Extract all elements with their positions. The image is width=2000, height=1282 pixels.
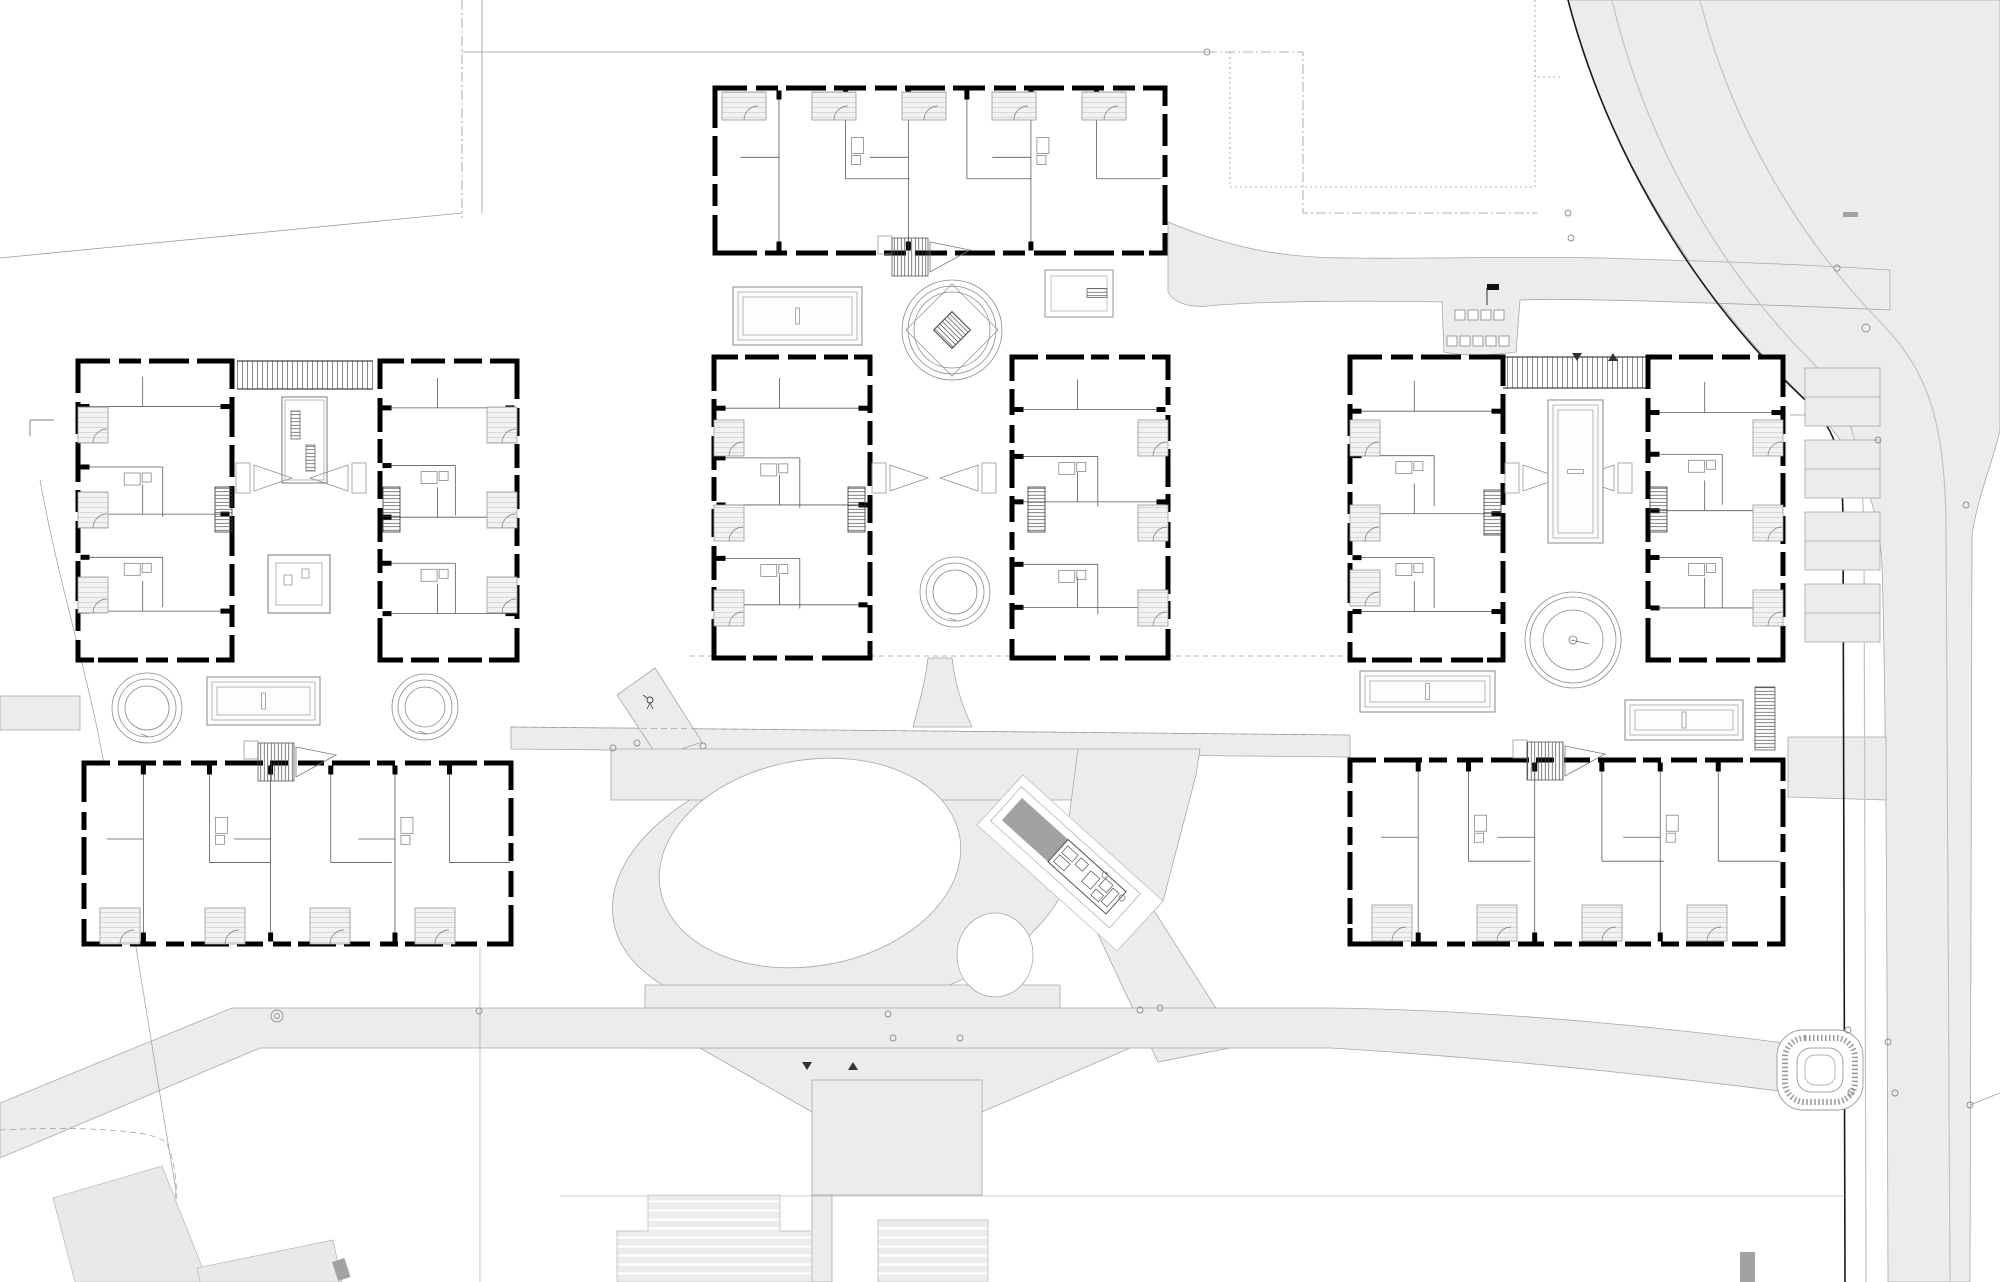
stairwell: [1650, 487, 1667, 532]
pool: [733, 287, 862, 345]
loggia: [1687, 905, 1727, 941]
stair-entry: [310, 463, 366, 493]
site-object-1: [1740, 1252, 1755, 1282]
loggia: [487, 407, 517, 443]
road-plaza: [812, 1080, 982, 1195]
table-planter: [282, 397, 327, 483]
small-green-island: [957, 913, 1033, 997]
loggia: [100, 908, 140, 944]
loggia: [1082, 92, 1126, 120]
loggia: [714, 590, 744, 626]
loggia: [1753, 505, 1783, 541]
existing-building-sw-2: [197, 1240, 342, 1282]
stairwell: [1028, 487, 1045, 532]
loggia: [1138, 590, 1168, 626]
loggia: [722, 92, 766, 120]
outdoor-table: [1481, 310, 1491, 320]
site-plan: [0, 0, 2000, 1282]
stairwell: [1484, 490, 1501, 535]
loggia: [992, 92, 1036, 120]
sign-board: [1487, 284, 1499, 290]
loggia: [1138, 420, 1168, 456]
existing-building-sw-1: [53, 1166, 208, 1282]
pool: [1360, 671, 1495, 712]
stair-entry: [872, 463, 928, 493]
loggia: [78, 407, 108, 443]
site-line-6: [1535, 0, 1563, 77]
plaza-planter: [268, 555, 330, 613]
pool: [1625, 700, 1743, 740]
stair-entry: [236, 463, 292, 493]
road-central-band-east: [1788, 737, 1886, 800]
outdoor-table: [1460, 336, 1470, 346]
site-line-0: [0, 213, 462, 258]
road-plaza-stem: [812, 1195, 832, 1282]
site-line-13: [1970, 1093, 2000, 1105]
pergola: [1503, 357, 1648, 388]
loggia: [78, 492, 108, 528]
pergola: [237, 361, 373, 389]
survey-marker-12: [1568, 235, 1574, 241]
loggia: [1582, 905, 1622, 941]
outdoor-table: [1473, 336, 1483, 346]
outdoor-table: [1499, 336, 1509, 346]
site-line-14: [30, 420, 54, 436]
outdoor-table: [1494, 310, 1504, 320]
loggia: [415, 908, 455, 944]
outdoor-table: [1447, 336, 1457, 346]
outdoor-table: [1468, 310, 1478, 320]
road-central-band-west: [0, 696, 80, 730]
loggia: [78, 577, 108, 613]
stairwell: [848, 487, 865, 532]
loggia: [714, 505, 744, 541]
mound-feature: [1777, 1030, 1863, 1110]
existing-building-s-1: [617, 1195, 812, 1282]
site-object-2: [1843, 212, 1858, 217]
loggia: [487, 577, 517, 613]
cluster-center: [714, 88, 1168, 658]
stairwell: [215, 487, 232, 532]
stairwell: [383, 487, 400, 532]
cluster-west: [78, 361, 517, 944]
site-line-5: [1230, 52, 1535, 187]
circular-planter: [920, 557, 990, 627]
loggia: [487, 492, 517, 528]
outdoor-table: [1455, 310, 1465, 320]
outdoor-table: [1486, 336, 1496, 346]
loggia: [205, 908, 245, 944]
site-line-4: [1207, 52, 1537, 213]
loggia: [902, 92, 946, 120]
loggia: [714, 420, 744, 456]
circular-planter: [112, 673, 182, 743]
survey-marker-11: [1565, 210, 1571, 216]
cluster-east: [1350, 357, 1783, 944]
bench-area: [1045, 270, 1113, 317]
loggia: [1372, 905, 1412, 941]
loggia: [1477, 905, 1517, 941]
loggia: [1350, 505, 1380, 541]
pool: [207, 677, 320, 725]
stair-entry: [940, 463, 996, 493]
loggia: [1753, 590, 1783, 626]
circular-planter: [392, 674, 458, 740]
loggia: [1350, 420, 1380, 456]
loggia: [1753, 420, 1783, 456]
site-plan-canvas: [0, 0, 2000, 1282]
loggia: [310, 908, 350, 944]
fountain-circle: [902, 280, 1002, 380]
road-courtyard-funnel: [913, 658, 972, 727]
loggia: [1350, 570, 1380, 606]
loggia: [1138, 505, 1168, 541]
exterior-stair: [1755, 687, 1775, 750]
loggia: [812, 92, 856, 120]
fountain-circle: [1525, 592, 1621, 688]
pool: [1548, 400, 1603, 543]
existing-building-s-2: [878, 1220, 988, 1282]
